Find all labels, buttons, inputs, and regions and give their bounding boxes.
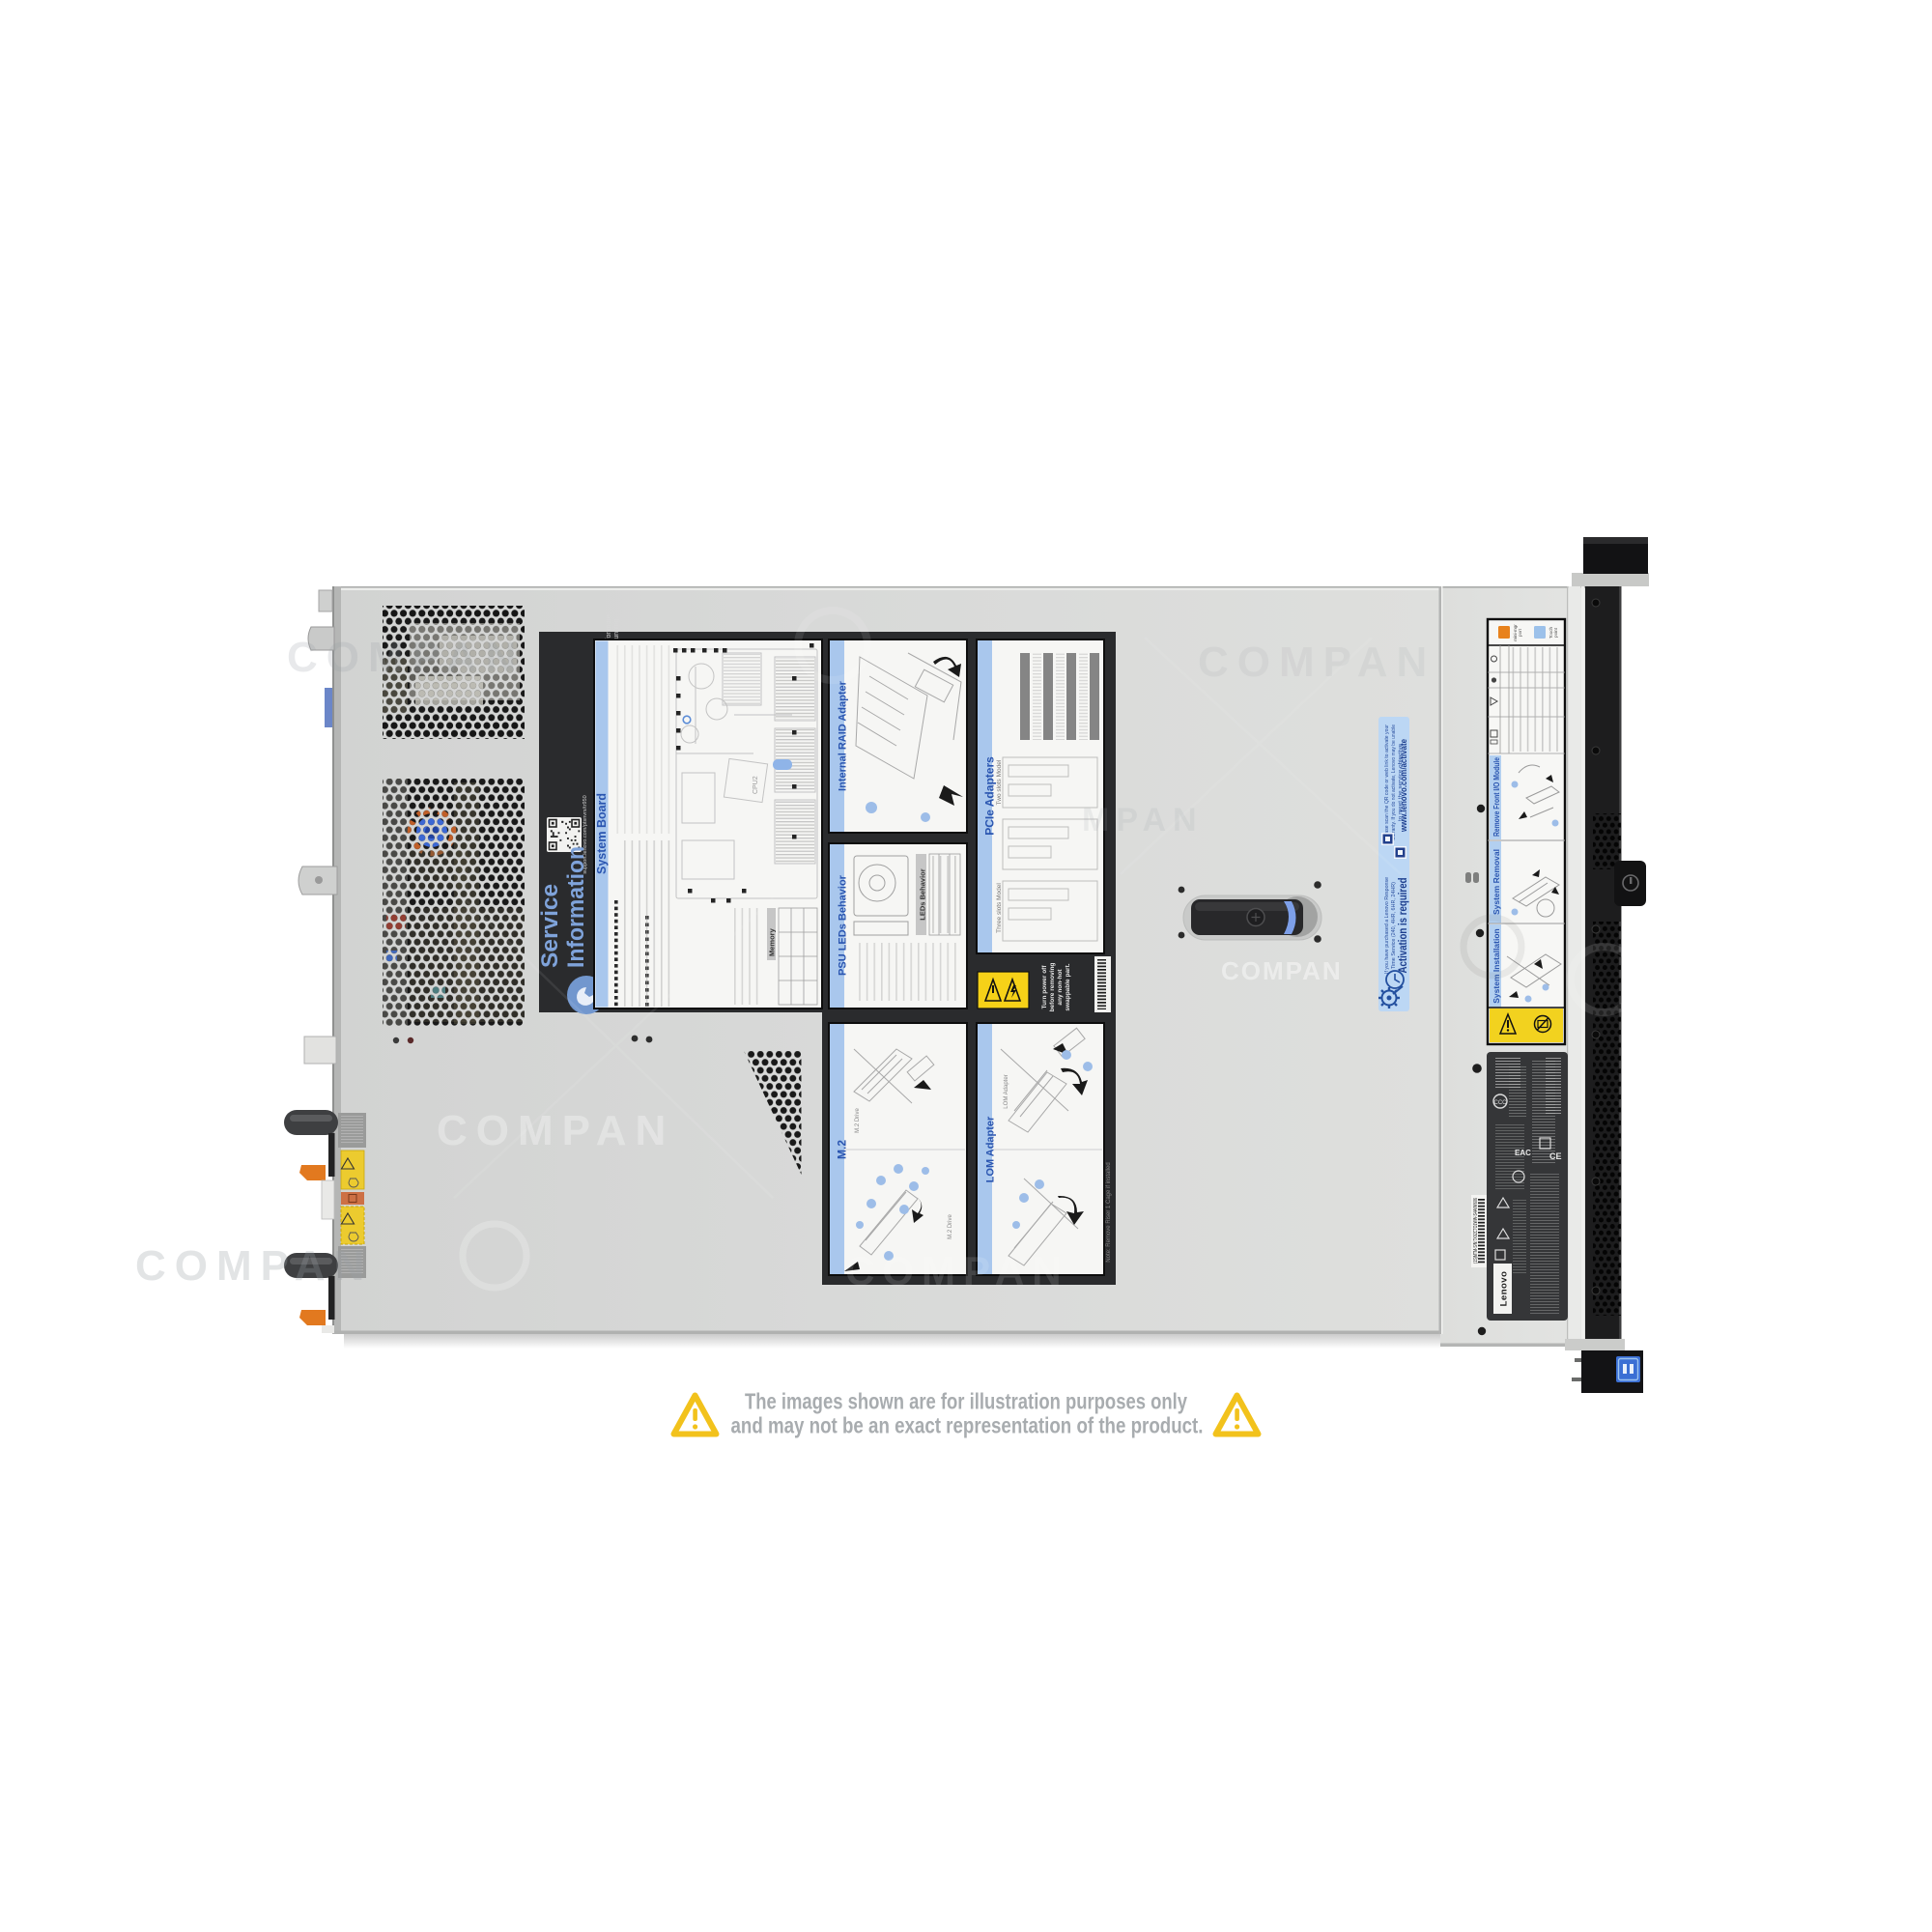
svg-text:PCIe Adapters: PCIe Adapters [983, 756, 997, 836]
svg-text:EAC: EAC [1515, 1149, 1531, 1157]
svg-text:Remove Front I/O Module: Remove Front I/O Module [1492, 757, 1501, 837]
svg-text:System Installation: System Installation [1492, 928, 1501, 1003]
svg-text:COMPAN: COMPAN [287, 634, 525, 681]
svg-text:Time Service (240, 4HR, 6HR, 2: Time Service (240, 4HR, 6HR, 24HR) [1391, 882, 1397, 969]
svg-text:point: point [1553, 627, 1558, 638]
svg-text:Note: Remove Riser 1 Cage if i: Note: Remove Riser 1 Cage if installed [1106, 1162, 1112, 1262]
svg-text:COMPAN: COMPAN [437, 1107, 674, 1154]
svg-text:(1S)MTM-S/N:7X02CTO1WW-S4AVW60: (1S)MTM-S/N:7X02CTO1WW-S4AVW606 [1473, 1198, 1479, 1264]
svg-text:Lenovo: Lenovo [1499, 1271, 1510, 1307]
svg-text:COMPAN: COMPAN [845, 1248, 1069, 1293]
svg-text:LEDs Behavior: LEDs Behavior [919, 868, 927, 920]
svg-text:M.2 Drive: M.2 Drive [948, 1214, 953, 1239]
svg-text:before removing: before removing [1049, 963, 1056, 1012]
svg-text:and may not be an exact repres: and may not be an exact representation o… [731, 1413, 1204, 1438]
svg-text:The images shown are for illus: The images shown are for illustration pu… [745, 1389, 1187, 1414]
svg-text:warranty. If you do not activa: warranty. If you do not activate, Lenovo… [1391, 724, 1397, 841]
svg-text:swappable part.: swappable part. [1065, 963, 1071, 1010]
svg-text:MPAN: MPAN [1082, 802, 1204, 838]
svg-text:Please scan the QR code or web: Please scan the QR code or web link to a… [1384, 724, 1390, 840]
svg-text:COMPAN: COMPAN [135, 1242, 373, 1290]
svg-text:CPU2: CPU2 [753, 776, 759, 794]
svg-text:M.2 Drive: M.2 Drive [855, 1108, 861, 1133]
svg-text:port: port [1518, 628, 1522, 637]
svg-text:any non-hot: any non-hot [1057, 969, 1064, 1006]
svg-text:www.lenovo.com/activate: www.lenovo.com/activate [1399, 739, 1408, 833]
svg-text:System Removal: System Removal [1492, 849, 1501, 915]
svg-text:Information: Information [563, 846, 589, 968]
svg-text:COMPAN: COMPAN [1221, 956, 1343, 985]
svg-text:CE: CE [1549, 1151, 1562, 1161]
svg-text:Memory: Memory [768, 927, 777, 956]
svg-text:Three slots Model: Three slots Model [996, 883, 1003, 933]
svg-text:If you have purchased a Lenovo: If you have purchased a Lenovo Response [1384, 877, 1390, 974]
svg-text:Service: Service [537, 884, 563, 968]
svg-text:CCC: CCC [1494, 1100, 1508, 1106]
svg-text:LOM Adapter: LOM Adapter [1004, 1074, 1009, 1108]
svg-text:Turn power off: Turn power off [1041, 965, 1048, 1009]
svg-text:COMPAN: COMPAN [1198, 639, 1435, 686]
svg-text:Activation is required: Activation is required [1398, 878, 1409, 974]
svg-text:Internal RAID Adapter: Internal RAID Adapter [838, 680, 849, 791]
svg-text:System Board: System Board [595, 793, 609, 874]
svg-text:PSU LEDs Behavior: PSU LEDs Behavior [838, 874, 849, 976]
svg-text:Two slots Model: Two slots Model [996, 759, 1003, 805]
